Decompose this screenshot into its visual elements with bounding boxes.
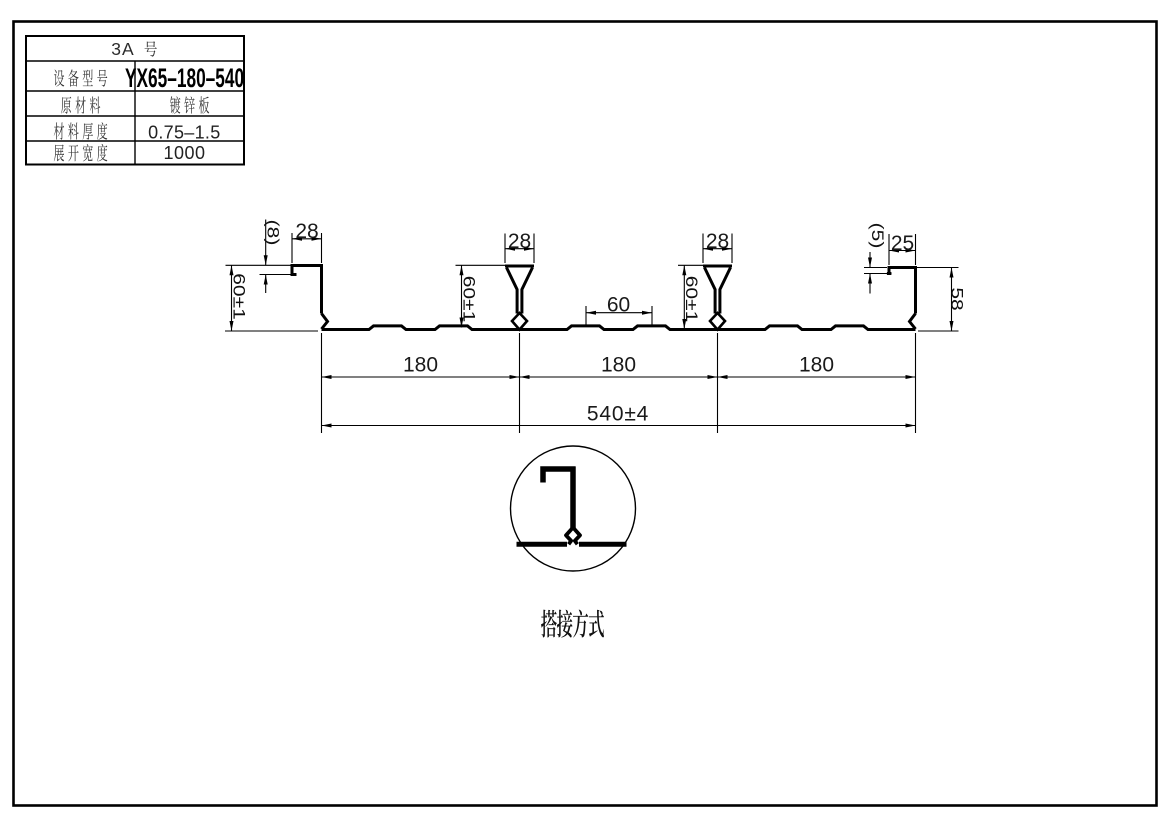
svg-text:60±1: 60±1 bbox=[460, 276, 478, 323]
svg-text:540±4: 540±4 bbox=[587, 403, 649, 426]
svg-text:180: 180 bbox=[601, 354, 636, 377]
svg-text:60±1: 60±1 bbox=[683, 276, 701, 323]
svg-text:28: 28 bbox=[706, 230, 729, 253]
svg-text:1000: 1000 bbox=[163, 143, 205, 163]
svg-text:60: 60 bbox=[607, 294, 630, 317]
svg-text:(5): (5) bbox=[868, 223, 886, 249]
svg-text:(8): (8) bbox=[264, 220, 282, 246]
svg-text:25: 25 bbox=[891, 232, 914, 255]
svg-text:YX65–180–540: YX65–180–540 bbox=[125, 62, 244, 93]
svg-text:3A: 3A bbox=[111, 39, 134, 59]
svg-text:28: 28 bbox=[508, 230, 531, 253]
svg-text:28: 28 bbox=[295, 220, 318, 243]
svg-text:60±1: 60±1 bbox=[230, 273, 248, 320]
svg-text:180: 180 bbox=[799, 354, 834, 377]
svg-text:58: 58 bbox=[948, 287, 966, 310]
svg-text:180: 180 bbox=[403, 354, 438, 377]
svg-text:0.75–1.5: 0.75–1.5 bbox=[148, 123, 220, 143]
